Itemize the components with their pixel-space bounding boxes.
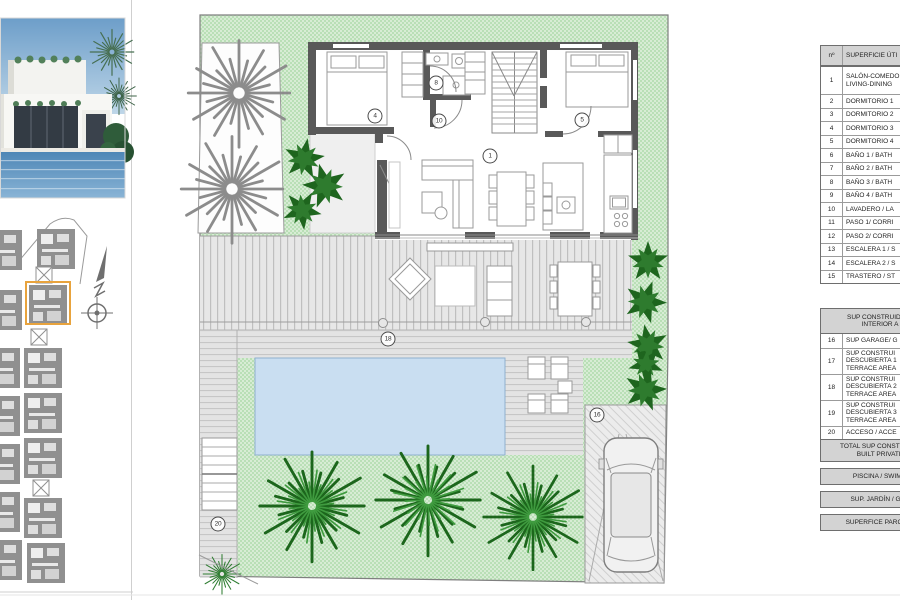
table-row: 16SUP GARAGE/ G: [821, 334, 900, 348]
room-label-access: 20: [211, 517, 226, 532]
table-row: 17SUP CONSTRUI DESCUBIERTA 1 TERRACE ARE…: [821, 348, 900, 374]
table-row: 1SALÓN-COMEDO LIVING-DINING: [821, 67, 900, 94]
table-header: nº SUPERFICIE ÚTI: [820, 45, 900, 67]
table-row: 7BAÑO 2 / BATH: [821, 162, 900, 176]
table-row: 3DORMITORIO 2: [821, 108, 900, 122]
summary-row-parcel: SUPERFICE PARCELA: [820, 514, 900, 531]
compass-icon: [81, 297, 113, 329]
summary-row-pool: PISCINA / SWIMM: [820, 468, 900, 485]
highlighted-plot: [26, 282, 70, 325]
key-plan: [0, 218, 113, 583]
table-row: 6BAÑO 1 / BATH: [821, 148, 900, 162]
table-row: 10LAVADERO / LA: [821, 202, 900, 216]
pool: [255, 358, 505, 455]
terrace-band: [237, 330, 632, 358]
table-row: 8BAÑO 3 / BATH: [821, 175, 900, 189]
kitchen-island: [543, 163, 583, 230]
built-surface-header: SUP CONSTRUIDA IN INTERIOR A: [820, 308, 900, 334]
surface-schedule-table: nº SUPERFICIE ÚTI 1SALÓN-COMEDO LIVING-D…: [820, 45, 900, 531]
table-row: 18SUP CONSTRUI DESCUBIERTA 2 TERRACE ARE…: [821, 374, 900, 400]
total-built-row: TOTAL SUP CONSTRUIDA BUILT PRIVATE: [820, 440, 900, 462]
car: [599, 438, 663, 572]
useful-surface-rows: 1SALÓN-COMEDO LIVING-DINING 2DORMITORIO …: [820, 67, 900, 284]
table-row: 5DORMITORIO 4: [821, 135, 900, 149]
building-floor-plan: [308, 42, 638, 240]
table-row: 9BAÑO 4 / BATH: [821, 189, 900, 203]
staircase: [492, 52, 537, 133]
table-row: 2DORMITORIO 1: [821, 94, 900, 108]
closet: [465, 52, 485, 94]
header-desc-col: SUPERFICIE ÚTI: [843, 52, 900, 59]
table-row: 11PASO 1/ CORRI: [821, 216, 900, 230]
villa-photo: [0, 18, 136, 198]
room-label-living: 1: [483, 149, 498, 164]
north-arrow-icon: [94, 246, 107, 296]
entry-steps: [202, 438, 237, 510]
table-row: 15TRASTERO / ST: [821, 270, 900, 284]
table-row: 4DORMITORIO 3: [821, 121, 900, 135]
room-label-bedroom-right: 5: [575, 113, 590, 128]
room-label-bathroom: 8: [429, 76, 444, 91]
built-surface-rows: 16SUP GARAGE/ G 17SUP CONSTRUI DESCUBIER…: [820, 334, 900, 440]
bedroom-right-bed: [566, 52, 628, 107]
table-row: 19SUP CONSTRUI DESCUBIERTA 3 TERRACE ARE…: [821, 400, 900, 426]
room-label-terrace: 18: [381, 332, 396, 347]
room-label-bedroom-left: 4: [368, 109, 383, 124]
dining-table: [489, 172, 534, 226]
wardrobe: [402, 52, 423, 97]
room-label-hallway: 10: [432, 114, 447, 129]
room-label-garage: 16: [590, 408, 605, 423]
table-row: 13ESCALERA 1 / S: [821, 243, 900, 257]
table-row: 14ESCALERA 2 / S: [821, 256, 900, 270]
kitchen-counter: [604, 135, 632, 233]
sheet-graphics: [0, 0, 900, 600]
plan-sheet: 1 4 5 8 10 16 18 20 nº SUPERFICIE ÚTI 1S…: [0, 0, 900, 600]
table-row: 20ACCESO / ACCE: [821, 426, 900, 440]
summary-row-garden: SUP. JARDÍN / GAR: [820, 491, 900, 508]
header-number-col: nº: [821, 46, 843, 65]
table-row: 12PASO 2/ CORRI: [821, 229, 900, 243]
site-plan: [181, 15, 675, 594]
